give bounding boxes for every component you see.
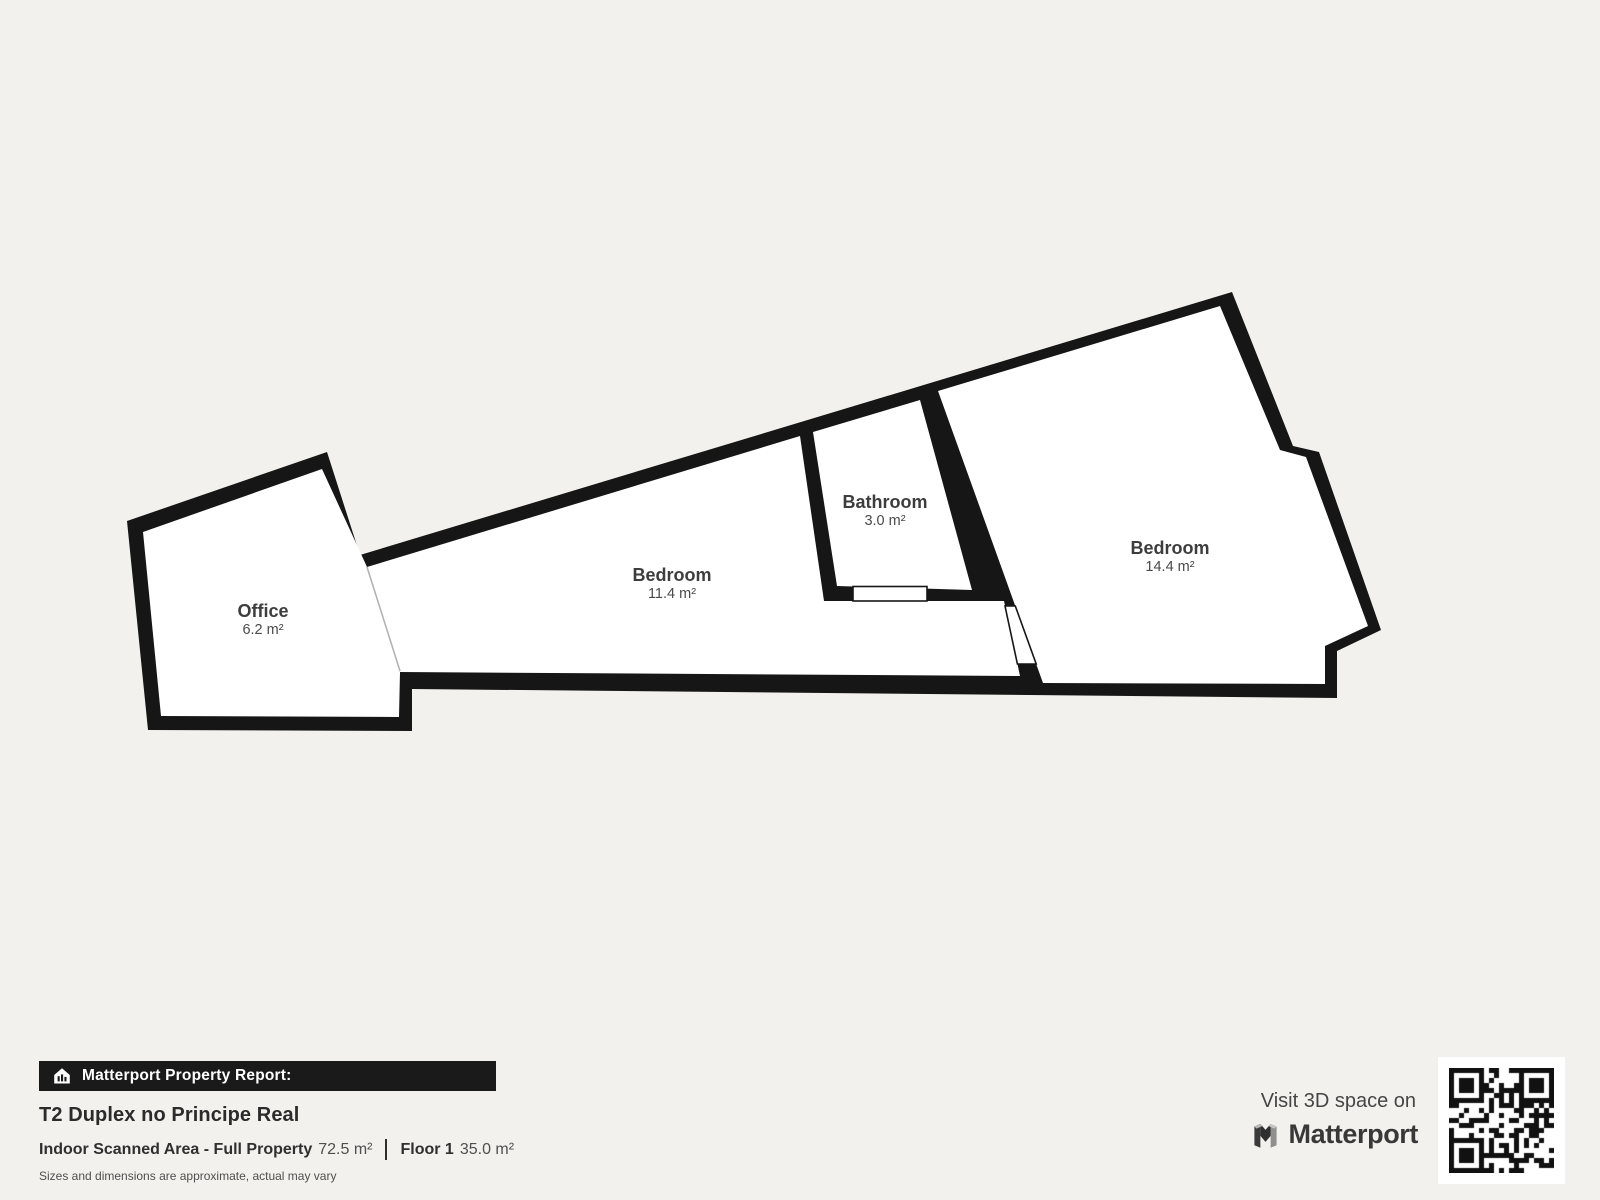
visit-text: Visit 3D space on xyxy=(1251,1090,1419,1113)
qr-code xyxy=(1438,1057,1565,1184)
floor-plan xyxy=(0,0,1600,1200)
matterport-m-icon xyxy=(1251,1121,1280,1149)
report-badge-label: Matterport Property Report: xyxy=(82,1067,292,1085)
matterport-wordmark: Matterport xyxy=(1289,1119,1419,1150)
property-report-block: Matterport Property Report: T2 Duplex no… xyxy=(39,1061,514,1183)
matterport-logo: Matterport xyxy=(1251,1119,1419,1150)
property-title: T2 Duplex no Principe Real xyxy=(39,1104,514,1127)
report-metrics: Indoor Scanned Area - Full Property 72.5… xyxy=(39,1139,514,1160)
metrics-divider xyxy=(385,1139,387,1160)
visit-3d-cta: Visit 3D space on Matterport xyxy=(1251,1090,1419,1150)
disclaimer-text: Sizes and dimensions are approximate, ac… xyxy=(39,1169,514,1183)
floor-label: Floor 1 xyxy=(400,1141,453,1159)
scanned-area-value: 72.5 m² xyxy=(318,1141,372,1159)
bathroom-door-opening xyxy=(853,587,927,602)
qr-code-pattern xyxy=(1449,1068,1554,1173)
report-badge-bar: Matterport Property Report: xyxy=(39,1061,496,1091)
floor-value: 35.0 m² xyxy=(460,1141,514,1159)
scanned-area-label: Indoor Scanned Area - Full Property xyxy=(39,1141,312,1159)
house-chart-icon xyxy=(53,1067,71,1085)
